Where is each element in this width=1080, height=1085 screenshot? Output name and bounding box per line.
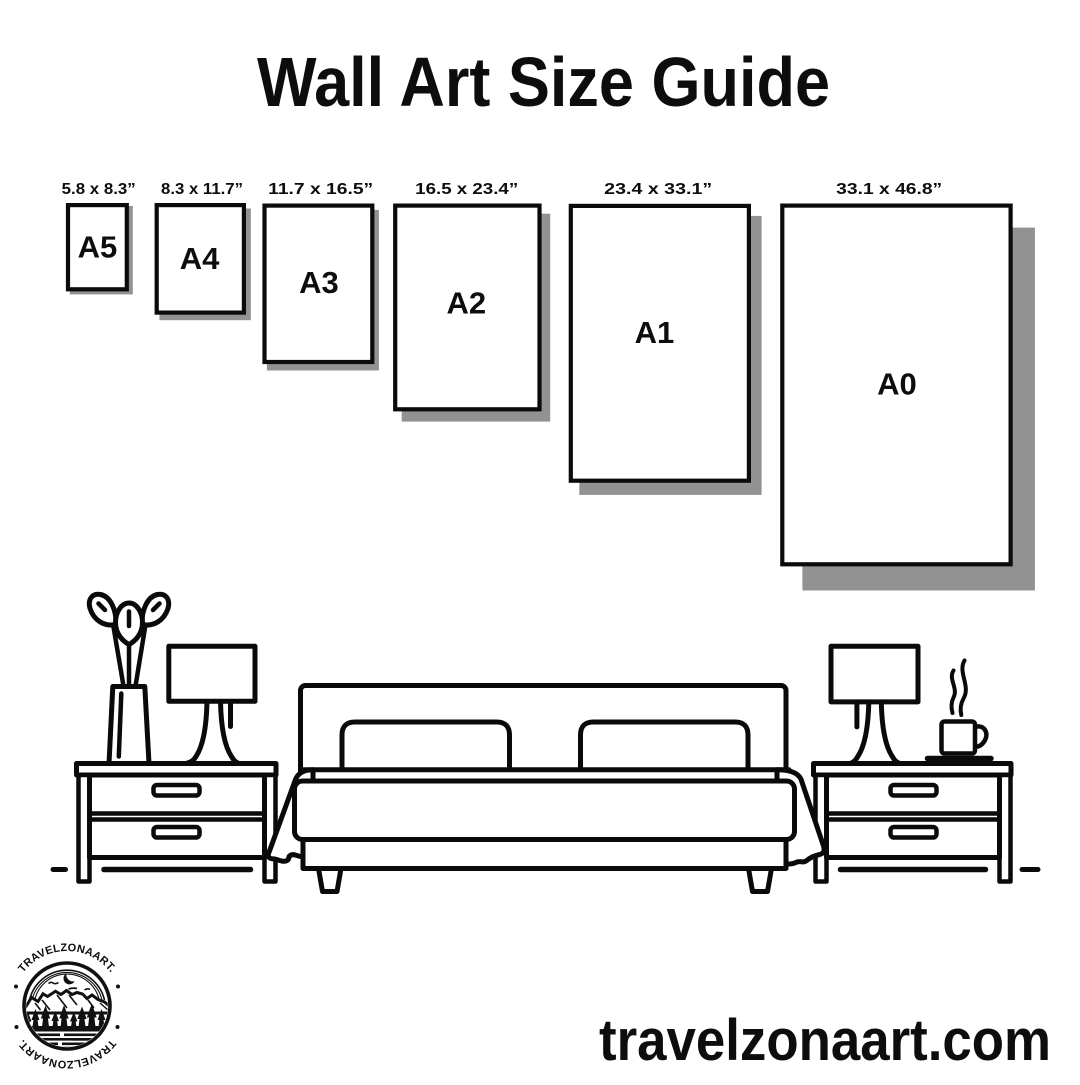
svg-text:11.7 x 16.5”: 11.7 x 16.5”: [268, 181, 373, 198]
svg-text:A4: A4: [180, 241, 220, 276]
svg-text:A2: A2: [446, 286, 486, 321]
svg-text:A1: A1: [635, 315, 675, 350]
svg-text:travelzonaart.com: travelzonaart.com: [599, 1008, 1051, 1073]
svg-text:Wall Art Size Guide: Wall Art Size Guide: [257, 43, 830, 121]
svg-text:A0: A0: [877, 366, 917, 401]
svg-text:33.1 x 46.8”: 33.1 x 46.8”: [836, 181, 942, 198]
svg-text:A3: A3: [299, 265, 339, 300]
svg-text:16.5 x 23.4”: 16.5 x 23.4”: [415, 181, 518, 198]
svg-text:A5: A5: [78, 230, 118, 265]
svg-text:23.4 x 33.1”: 23.4 x 33.1”: [604, 181, 712, 198]
svg-text:5.8 x 8.3”: 5.8 x 8.3”: [62, 181, 136, 198]
svg-text:8.3 x 11.7”: 8.3 x 11.7”: [161, 181, 243, 198]
